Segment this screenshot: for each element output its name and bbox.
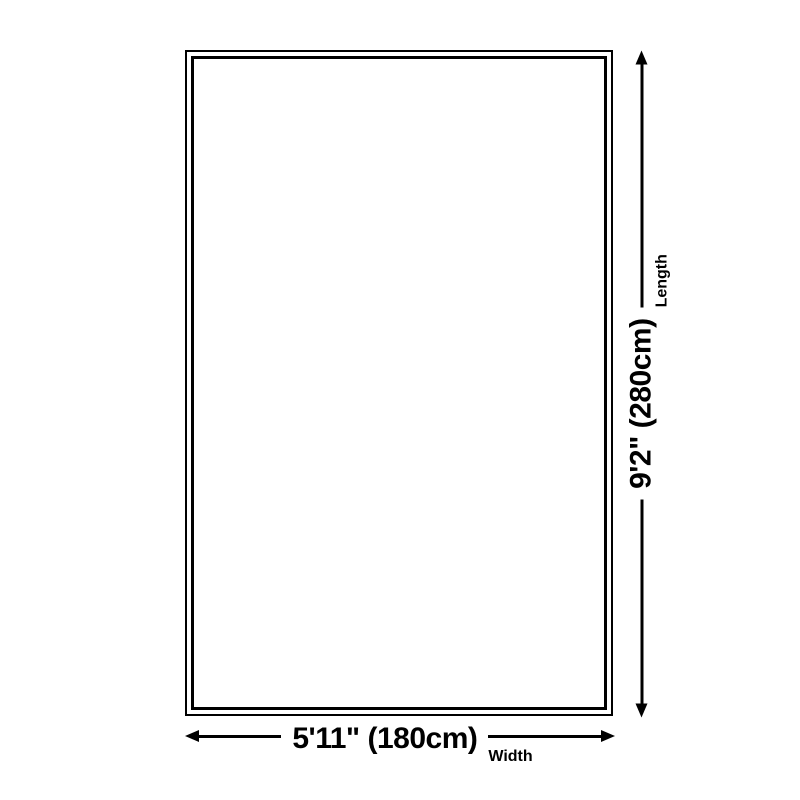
length-dimension: 9'2" (280cm) Length [628, 51, 656, 718]
arrow-left-icon [185, 730, 199, 742]
arrow-down-icon [636, 704, 648, 718]
width-dimension: 5'11" (180cm) Width [185, 722, 615, 750]
dimension-line [488, 735, 601, 738]
rug-inner-border [191, 56, 607, 710]
arrow-right-icon [601, 730, 615, 742]
width-dimension-line-left [199, 735, 281, 738]
length-dimension-line-top [636, 50, 648, 307]
width-dimension-tail: Width [488, 730, 615, 766]
length-dimension-line-bottom [640, 500, 643, 704]
length-dimension-tail: Length [636, 50, 672, 307]
width-dimension-line-right [488, 730, 615, 742]
arrow-up-icon [636, 50, 648, 64]
dimension-line [640, 64, 643, 307]
length-value: 9'2" (280cm) [625, 318, 659, 488]
length-axis-label: Length [654, 254, 672, 307]
width-value: 5'11" (180cm) [292, 722, 477, 756]
rug-outline [185, 50, 613, 716]
width-axis-label: Width [488, 748, 532, 766]
rug-size-diagram: 5'11" (180cm) Width 9'2" (280cm) Length [0, 0, 800, 800]
